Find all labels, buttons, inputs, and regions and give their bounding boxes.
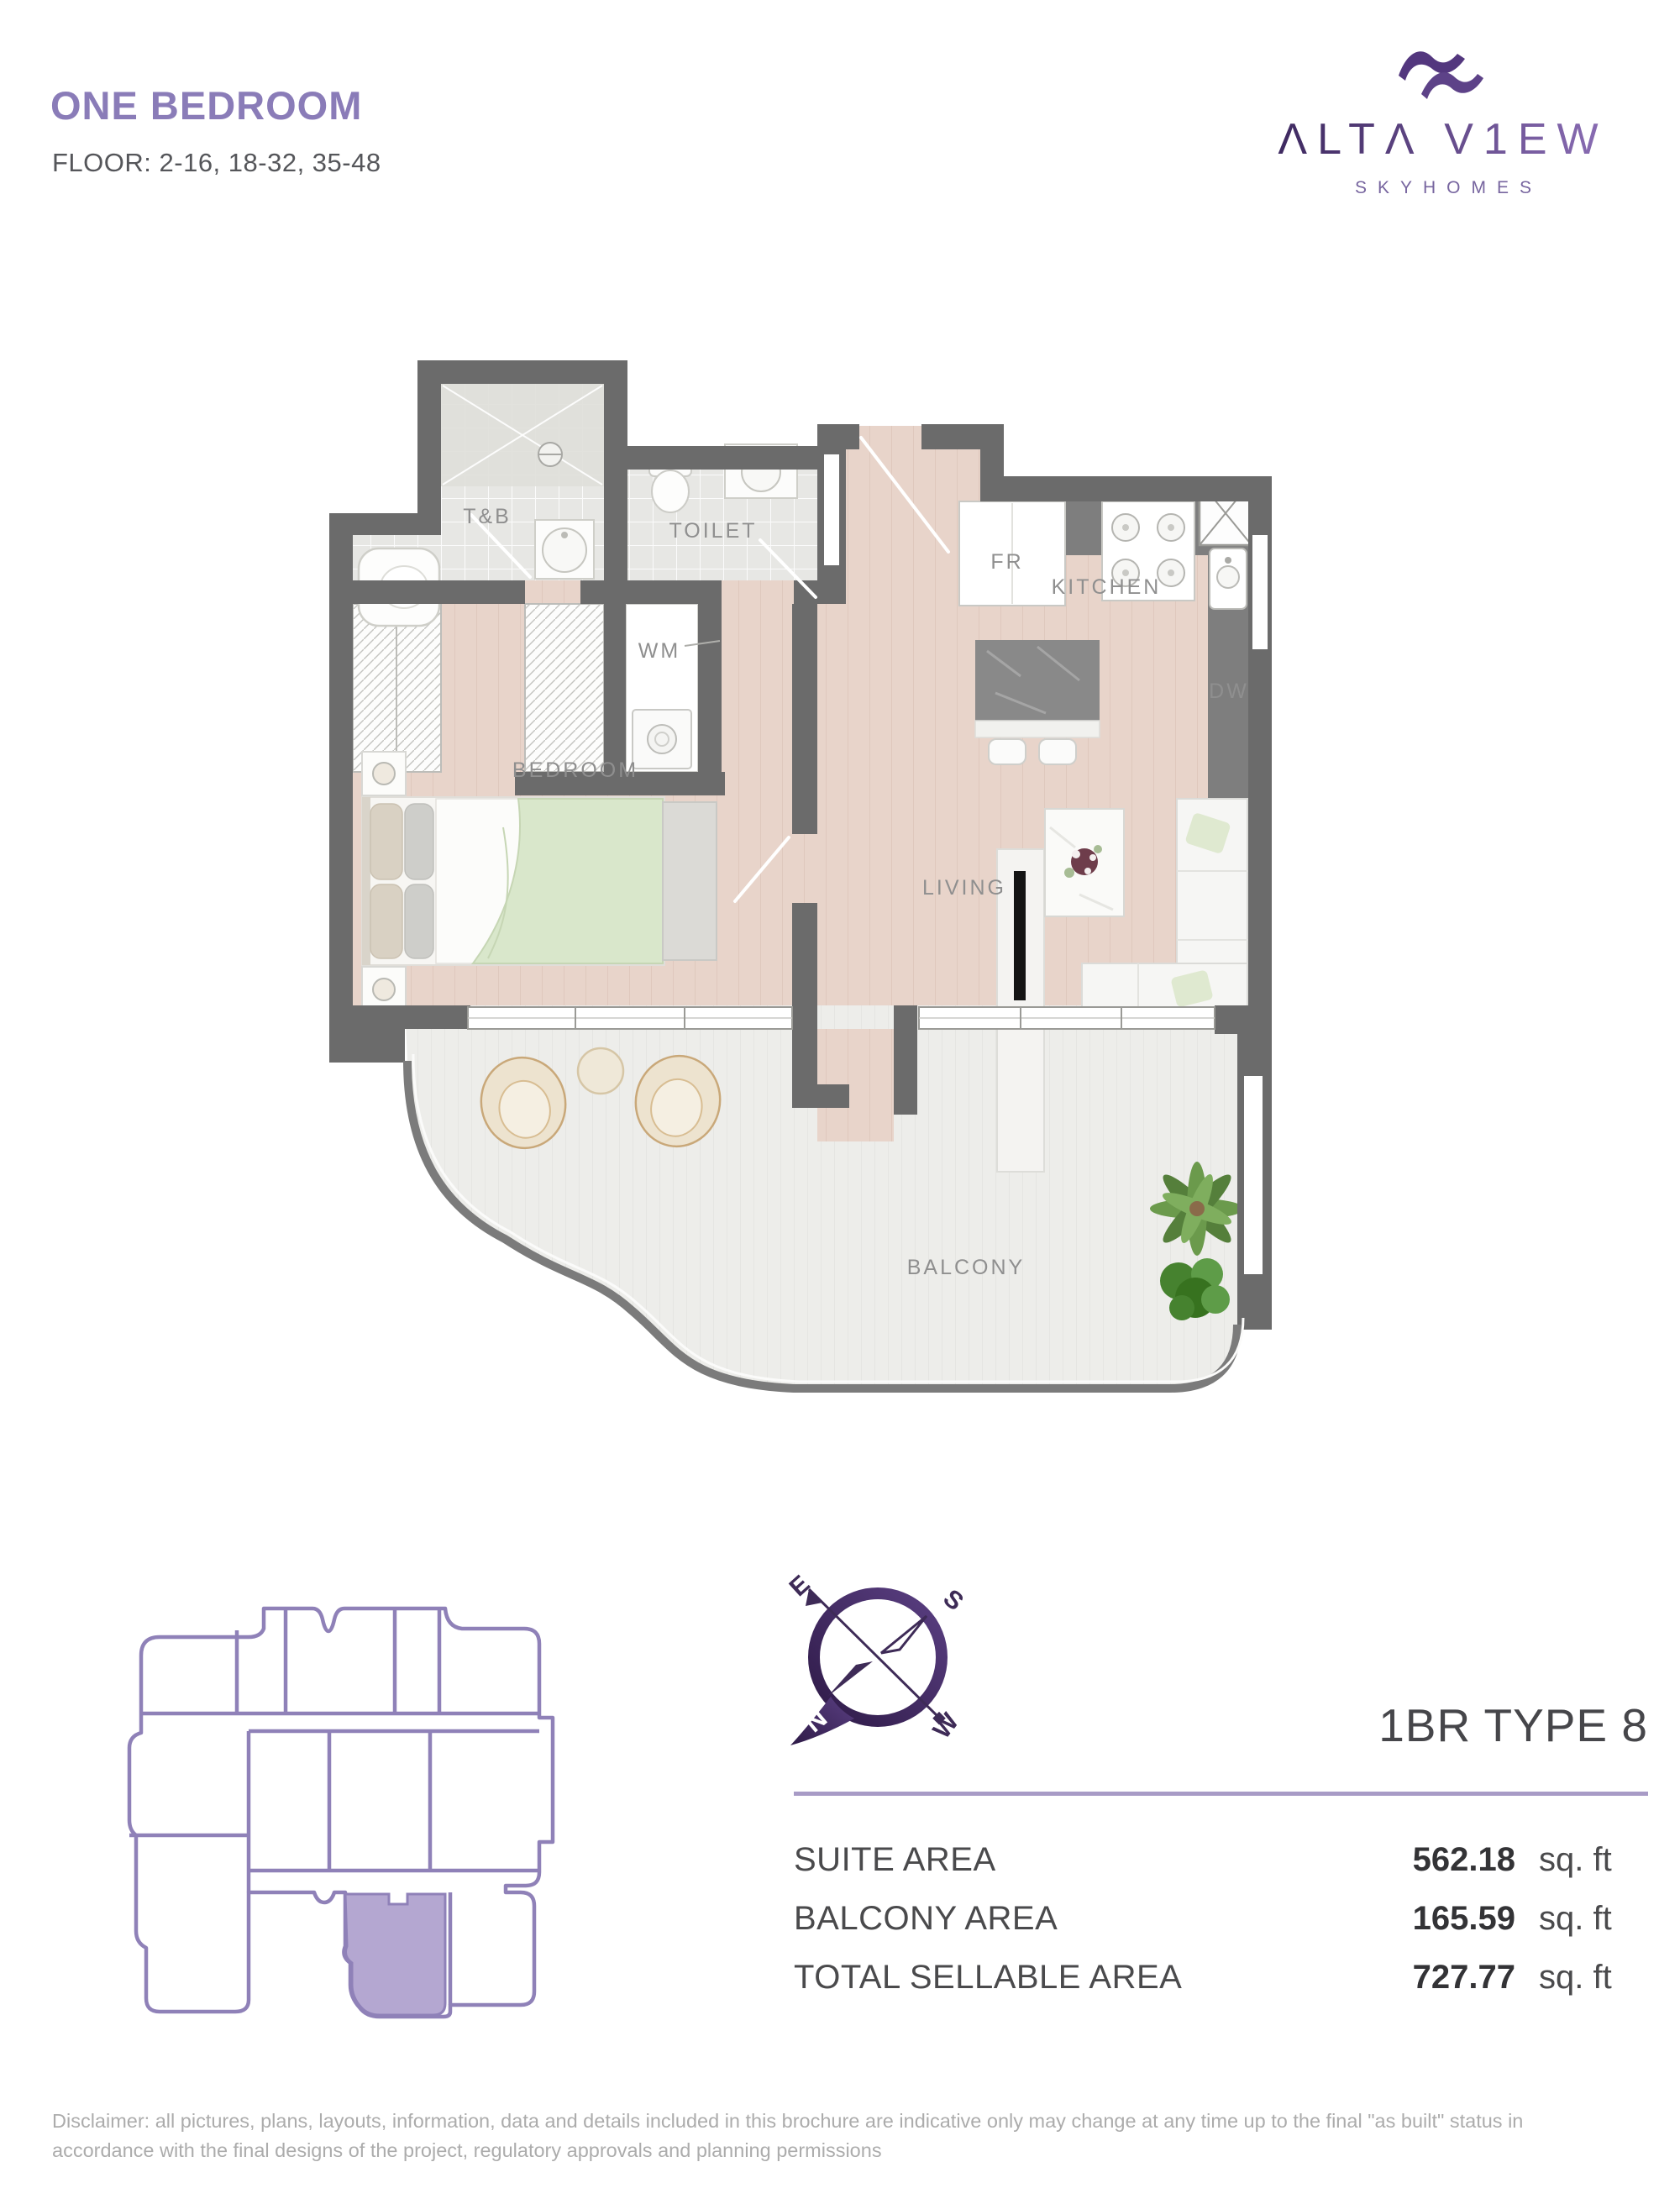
page-title: ONE BEDROOM (50, 82, 362, 129)
brand-wordmark: ΛLTΛ V1EW (1233, 113, 1653, 167)
area-label: SUITE AREA (794, 1841, 1347, 1879)
brand-logo: ΛLTΛ V1EW SKYHOMES (1233, 25, 1653, 198)
key-plan (67, 1583, 588, 2054)
bush-plant-icon (1160, 1258, 1230, 1320)
floor-range-label: FLOOR: 2-16, 18-32, 35-48 (52, 148, 381, 178)
key-plan-outline (129, 1608, 553, 2017)
brand-wave-icon (1233, 25, 1653, 109)
area-unit: sq. ft (1539, 1841, 1648, 1879)
bed (362, 797, 717, 965)
area-value: 165.59 (1347, 1900, 1515, 1938)
shower-area (441, 384, 604, 486)
room-label-fridge: FR (990, 550, 1023, 574)
area-row-balcony: BALCONY AREA 165.59 sq. ft (794, 1900, 1648, 1959)
room-label-balcony: BALCONY (907, 1256, 1025, 1279)
area-row-suite: SUITE AREA 562.18 sq. ft (794, 1841, 1648, 1900)
stool-icon (989, 739, 1026, 764)
room-label-tb: T&B (463, 505, 512, 528)
kitchen-sink-icon (1210, 548, 1247, 609)
room-label-bedroom: BEDROOM (512, 758, 638, 782)
stool-icon (1039, 739, 1076, 764)
coffee-table (1045, 809, 1124, 916)
area-label: BALCONY AREA (794, 1900, 1347, 1938)
room-label-dishwasher: DW (1209, 680, 1249, 703)
room-label-wm: WM (638, 639, 680, 663)
washing-machine-icon (633, 710, 691, 769)
room-label-living: LIVING (922, 876, 1006, 900)
divider-line (794, 1792, 1648, 1796)
area-row-total: TOTAL SELLABLE AREA 727.77 sq. ft (794, 1959, 1648, 2018)
unit-type-title: 1BR TYPE 8 (794, 1698, 1648, 1752)
brand-tagline: SKYHOMES (1233, 178, 1653, 198)
balcony-table-icon (578, 1048, 623, 1094)
room-label-kitchen: KITCHEN (1052, 575, 1162, 599)
bed-bench (663, 802, 717, 960)
area-value: 727.77 (1347, 1959, 1515, 1997)
tv-icon (1014, 871, 1026, 1000)
disclaimer-text: Disclaimer: all pictures, plans, layouts… (52, 2107, 1564, 2165)
area-value: 562.18 (1347, 1841, 1515, 1879)
room-label-toilet: TOILET (669, 519, 757, 543)
brand-wordmark-text: ΛLTΛ V1EW (1278, 115, 1608, 164)
key-plan-highlighted-unit (345, 1894, 445, 2015)
compass-south-label: S (938, 1584, 969, 1616)
area-unit: sq. ft (1539, 1900, 1648, 1938)
wardrobes (353, 604, 698, 772)
brochure-page: ONE BEDROOM FLOOR: 2-16, 18-32, 35-48 ΛL… (0, 0, 1680, 2204)
area-table: SUITE AREA 562.18 sq. ft BALCONY AREA 16… (794, 1841, 1648, 2018)
floor-plan: T&B TOILET WM BEDROOM KITCHEN FR DW LIVI… (323, 357, 1298, 1440)
area-unit: sq. ft (1539, 1959, 1648, 1997)
area-label: TOTAL SELLABLE AREA (794, 1959, 1347, 1997)
